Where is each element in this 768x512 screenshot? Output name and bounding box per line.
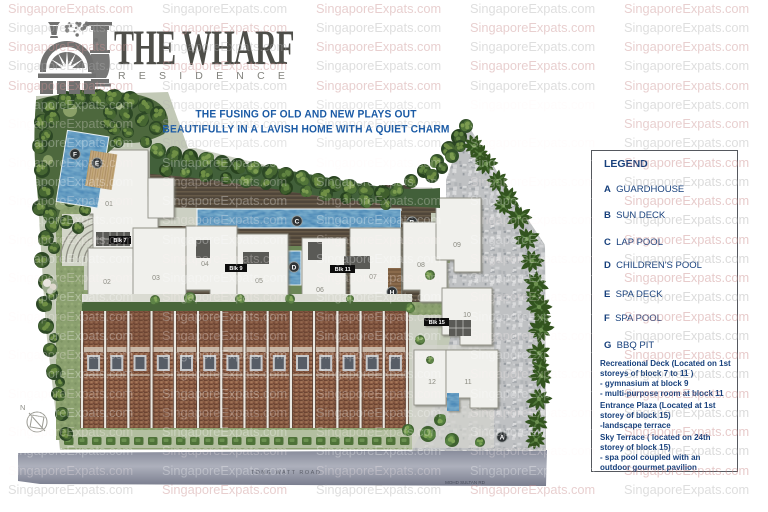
svg-text:N: N xyxy=(20,403,25,412)
svg-text:Blk 7: Blk 7 xyxy=(113,238,126,244)
svg-text:03: 03 xyxy=(152,275,160,282)
svg-text:TONG WATT ROAD: TONG WATT ROAD xyxy=(251,470,322,476)
svg-text:Blk 15: Blk 15 xyxy=(429,320,445,326)
svg-text:F: F xyxy=(73,151,77,158)
svg-text:C: C xyxy=(295,218,300,225)
svg-text:10: 10 xyxy=(463,312,471,319)
svg-text:02: 02 xyxy=(103,279,111,286)
svg-text:Blk 11: Blk 11 xyxy=(335,267,351,273)
svg-text:09: 09 xyxy=(453,242,461,249)
svg-text:D: D xyxy=(292,264,297,271)
svg-text:01: 01 xyxy=(105,201,113,208)
svg-text:MOHD SULTAN RD: MOHD SULTAN RD xyxy=(445,480,486,485)
svg-text:E: E xyxy=(95,160,100,167)
svg-text:08: 08 xyxy=(417,262,425,269)
svg-text:07: 07 xyxy=(369,274,377,281)
svg-text:12: 12 xyxy=(428,379,436,386)
svg-text:11: 11 xyxy=(464,379,471,386)
svg-text:05: 05 xyxy=(255,278,263,285)
svg-text:Blk 9: Blk 9 xyxy=(229,266,242,272)
svg-text:04: 04 xyxy=(201,261,209,268)
svg-text:A: A xyxy=(500,434,505,441)
svg-text:06: 06 xyxy=(316,287,324,294)
